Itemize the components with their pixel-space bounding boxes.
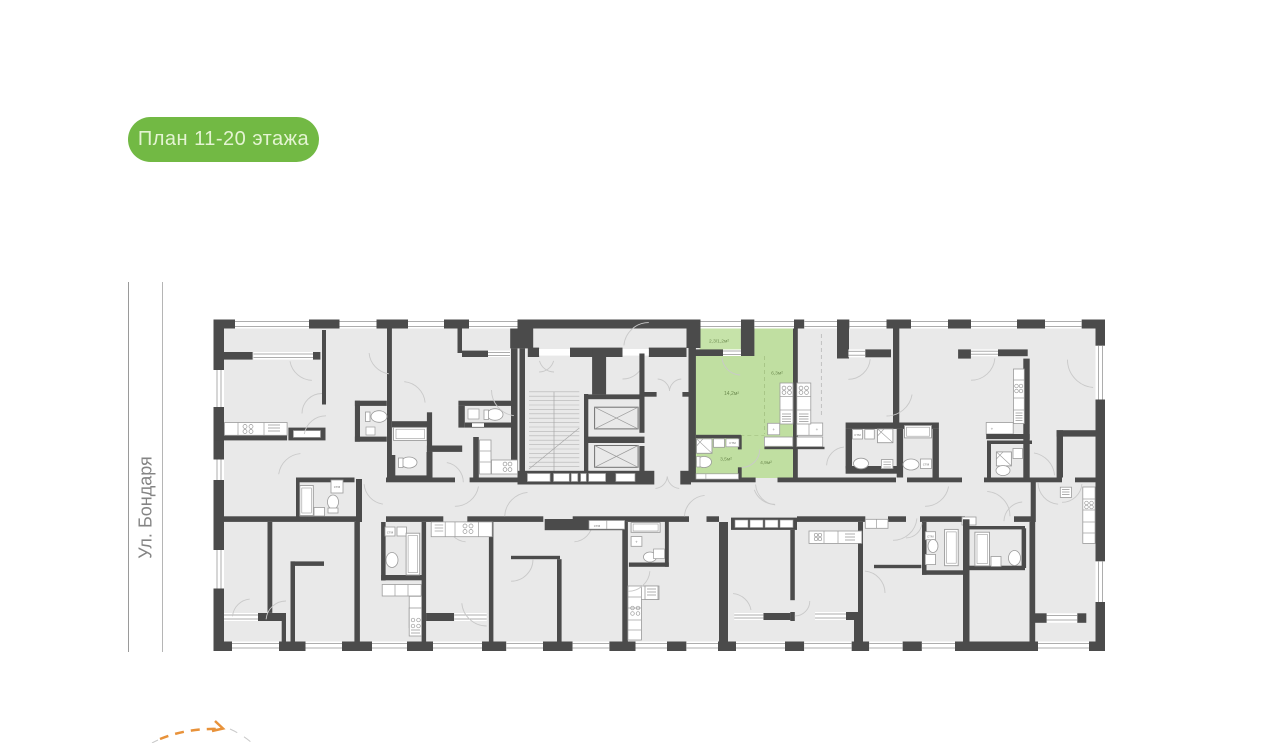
- svg-text:стм: стм: [334, 484, 341, 489]
- svg-text:стм: стм: [729, 440, 736, 445]
- svg-text:стм: стм: [923, 462, 930, 467]
- svg-text:+: +: [991, 427, 994, 432]
- svg-text:стм: стм: [594, 523, 601, 528]
- svg-text:3,5м²: 3,5м²: [720, 456, 732, 462]
- svg-text:6,3м²: 6,3м²: [771, 371, 783, 377]
- svg-text:+: +: [772, 427, 775, 432]
- svg-text:+: +: [816, 427, 819, 432]
- svg-text:+: +: [635, 540, 638, 545]
- svg-text:стм: стм: [854, 432, 861, 437]
- svg-text:14,2м²: 14,2м²: [724, 391, 739, 397]
- svg-text:2,3/1,2м²: 2,3/1,2м²: [709, 339, 729, 345]
- svg-text:4,9м²: 4,9м²: [760, 460, 772, 466]
- svg-text:стм: стм: [387, 530, 394, 535]
- svg-text:стм: стм: [927, 534, 934, 539]
